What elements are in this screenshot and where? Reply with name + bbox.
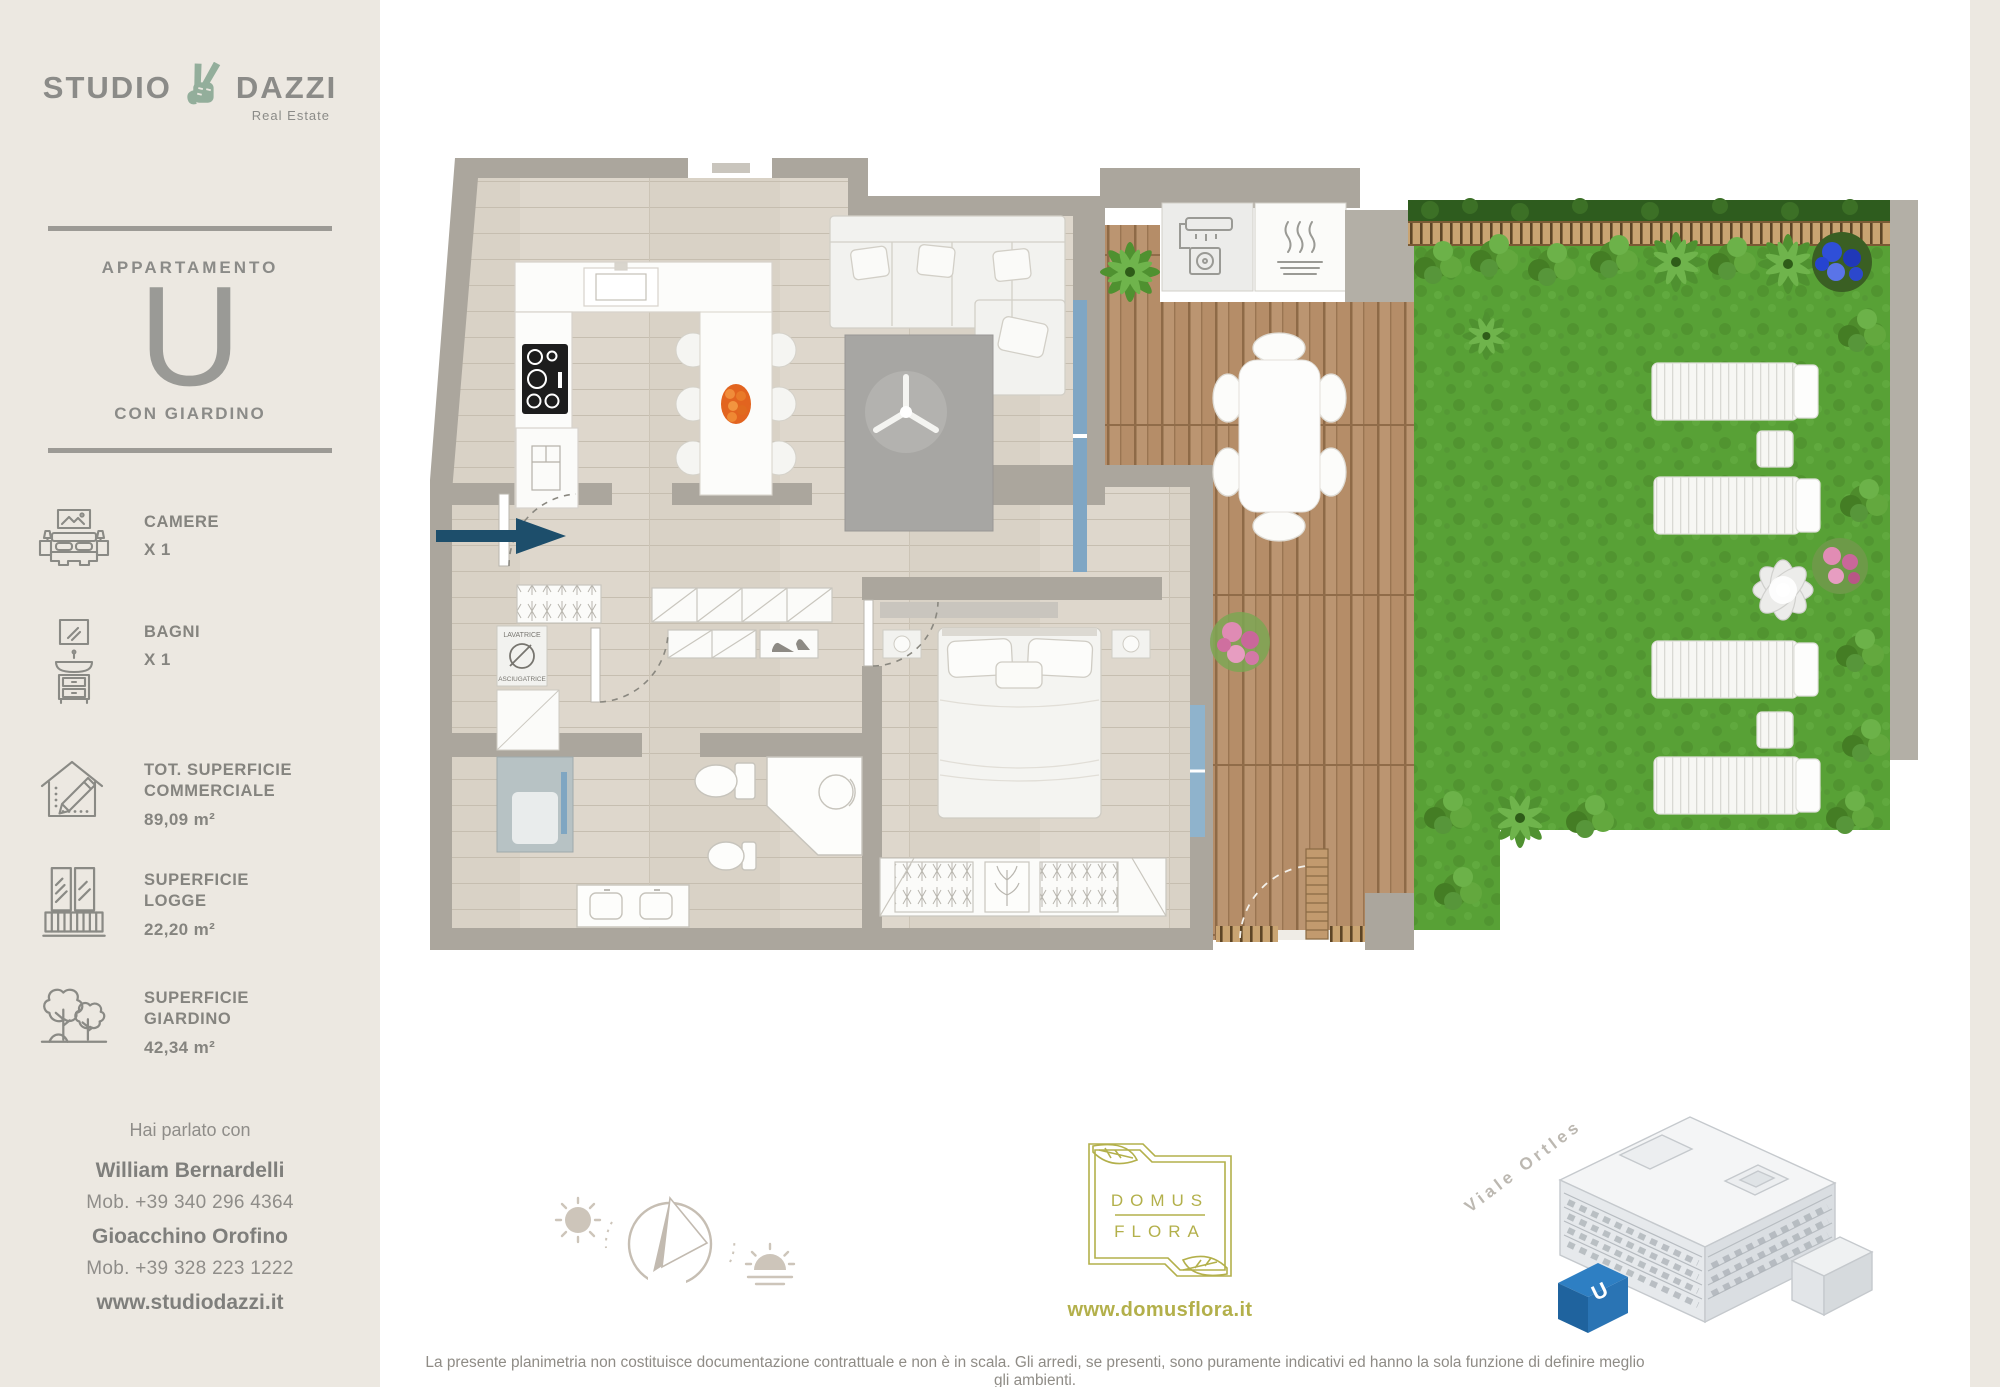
studio-dazzi-logo: STUDIO DAZZI <box>0 62 380 114</box>
apartment-caption: CON GIARDINO <box>0 404 380 424</box>
stat-superficie-logge: SUPERFICIE LOGGE 22,20 m² <box>36 866 366 940</box>
stat-label: LOGGE <box>144 891 319 912</box>
washbasin-icon <box>36 618 112 718</box>
peace-hand-icon <box>181 62 227 114</box>
stat-label: COMMERCIALE <box>144 781 319 802</box>
flower-sculpture <box>1753 560 1814 621</box>
stat-label: TOT. SUPERFICIE <box>144 760 319 781</box>
developer-logo-block: DOMUS FLORA www.domusflora.it <box>1050 1140 1270 1322</box>
agent-name: William Bernardelli <box>0 1159 380 1183</box>
stat-value: 42,34 m² <box>144 1038 319 1058</box>
unit-highlight: U <box>1558 1263 1628 1333</box>
stat-label: GIARDINO <box>144 1009 319 1030</box>
laundry-label-top: LAVATRICE <box>503 632 541 639</box>
sunset-icon <box>746 1244 794 1284</box>
bidet <box>708 842 756 870</box>
agent-phone: Mob. +39 328 223 1222 <box>0 1258 380 1280</box>
bedroom-wardrobe <box>880 858 1166 916</box>
stat-label: SUPERFICIE <box>144 988 319 1009</box>
fridge <box>516 428 578 508</box>
divider <box>48 226 332 231</box>
stat-value: X 1 <box>144 540 319 560</box>
garden <box>1408 198 1918 930</box>
developer-website-link[interactable]: www.domusflora.it <box>1050 1299 1270 1322</box>
orientation-group: N <box>545 1185 805 1333</box>
rug-and-fan <box>845 335 993 531</box>
garden-steps <box>1306 849 1328 939</box>
logo-word-studio: STUDIO <box>43 70 172 106</box>
sliding-glass-door <box>1073 300 1087 572</box>
stat-label: BAGNI <box>144 622 319 643</box>
wall-block <box>1345 210 1414 302</box>
domus-flora-logo: DOMUS FLORA <box>1085 1140 1235 1280</box>
cooktop <box>522 344 568 414</box>
stat-value: 89,09 m² <box>144 810 319 830</box>
floor-plan: LAVATRICE ASCIUGATRICE <box>430 155 1920 960</box>
disclaimer-text: La presente planimetria non costituisce … <box>420 1354 1650 1387</box>
stat-superficie-commerciale: TOT. SUPERFICIE COMMERCIALE 89,09 m² <box>36 756 366 830</box>
contact-block: Hai parlato con William Bernardelli Mob.… <box>0 1120 380 1315</box>
sidebar: STUDIO DAZZI Real Estate APPARTAMENTO U … <box>0 0 380 1387</box>
agent-name: Gioacchino Orofino <box>0 1225 380 1249</box>
toilet <box>695 763 755 799</box>
stat-camere: CAMERE X 1 <box>36 508 366 572</box>
stat-bagni: BAGNI X 1 <box>36 618 366 718</box>
stat-value: 22,20 m² <box>144 920 319 940</box>
stat-label: SUPERFICIE <box>144 870 319 891</box>
double-bed <box>938 628 1101 818</box>
garden-trees-icon <box>36 984 112 1046</box>
pink-flower-bush-garden <box>1812 538 1868 594</box>
kitchen-window <box>688 158 772 178</box>
garden-fence <box>1408 222 1890 246</box>
pink-flower-bush <box>1210 612 1270 672</box>
agent-phone: Mob. +39 340 296 4364 <box>0 1192 380 1214</box>
flyer-page: STUDIO DAZZI Real Estate APPARTAMENTO U … <box>0 0 2000 1387</box>
domus-text: DOMUS <box>1111 1191 1209 1210</box>
balcony-icon <box>36 866 112 940</box>
sun-icon <box>556 1198 600 1242</box>
stat-value: X 1 <box>144 650 319 670</box>
fruit-bowl <box>721 384 751 424</box>
island-chairs <box>676 312 796 495</box>
stat-label: CAMERE <box>144 512 319 533</box>
contact-intro: Hai parlato con <box>0 1120 380 1141</box>
apartment-letter: U <box>0 266 380 408</box>
logo-tagline: Real Estate <box>0 108 330 123</box>
house-pencil-icon <box>36 756 112 824</box>
logo-word-dazzi: DAZZI <box>236 70 337 106</box>
blue-flower-bush <box>1812 232 1872 292</box>
wall-shelf <box>880 602 1058 618</box>
stat-superficie-giardino: SUPERFICIE GIARDINO 42,34 m² <box>36 984 366 1058</box>
garden-wall <box>1890 200 1918 760</box>
vanity <box>577 885 689 927</box>
building-illustration: Viale Ortles U <box>1440 1085 1900 1355</box>
agency-website-link[interactable]: www.studiodazzi.it <box>0 1291 380 1315</box>
laundry-label-bottom: ASCIUGATRICE <box>498 676 545 683</box>
flora-text: FLORA <box>1114 1222 1206 1241</box>
divider <box>48 448 332 453</box>
bed-icon <box>36 508 112 572</box>
potted-plant <box>1100 242 1160 302</box>
